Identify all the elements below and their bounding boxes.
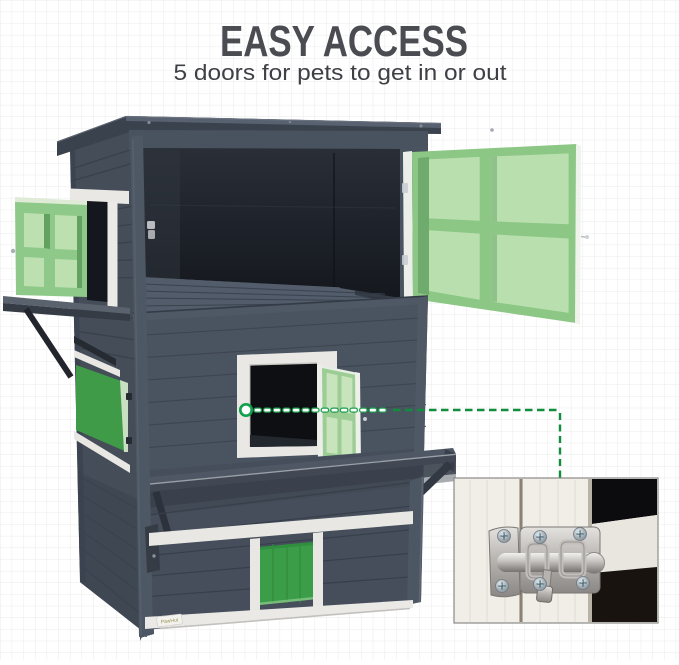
svg-text:EASY ACCESS: EASY ACCESS	[220, 17, 468, 66]
svg-text:5 doors for pets to get in or: 5 doors for pets to get in or out	[174, 60, 507, 85]
